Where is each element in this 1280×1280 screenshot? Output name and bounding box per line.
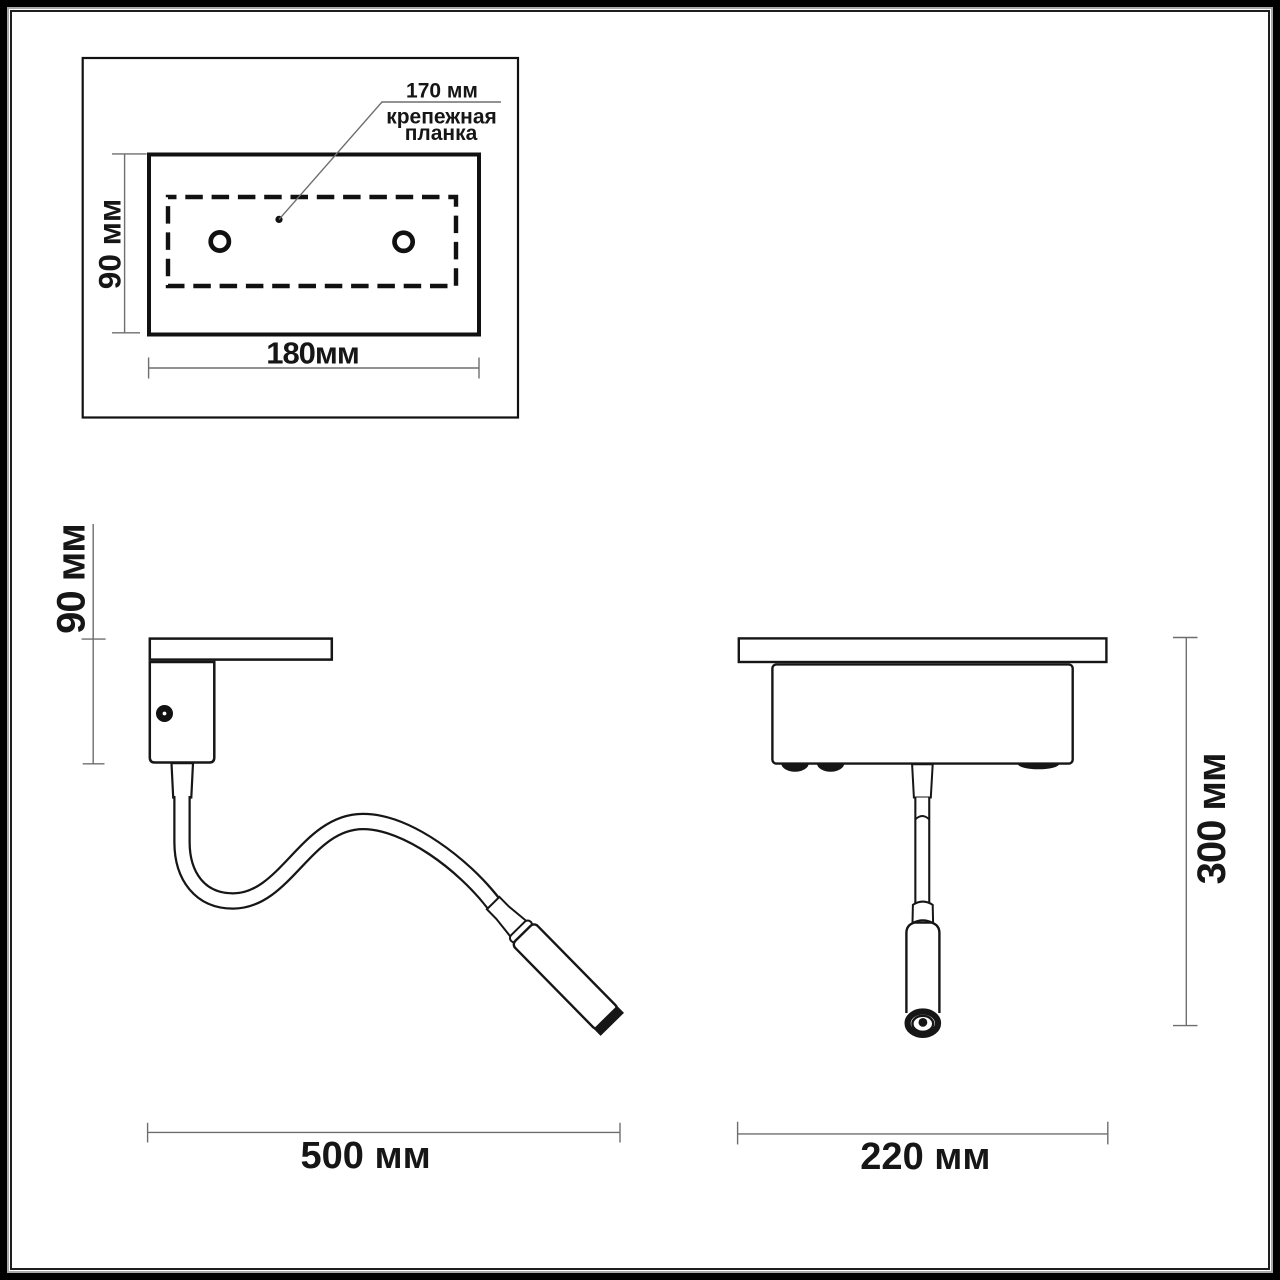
svg-text:170 мм: 170 мм [406,80,478,103]
svg-text:90 мм: 90 мм [91,199,127,289]
svg-text:220 мм: 220 мм [860,1136,990,1178]
svg-text:планка: планка [405,122,478,145]
svg-text:90 мм: 90 мм [50,524,94,634]
svg-text:500 мм: 500 мм [301,1135,431,1177]
svg-text:300 мм: 300 мм [1190,753,1234,884]
svg-text:180мм: 180мм [266,336,359,371]
